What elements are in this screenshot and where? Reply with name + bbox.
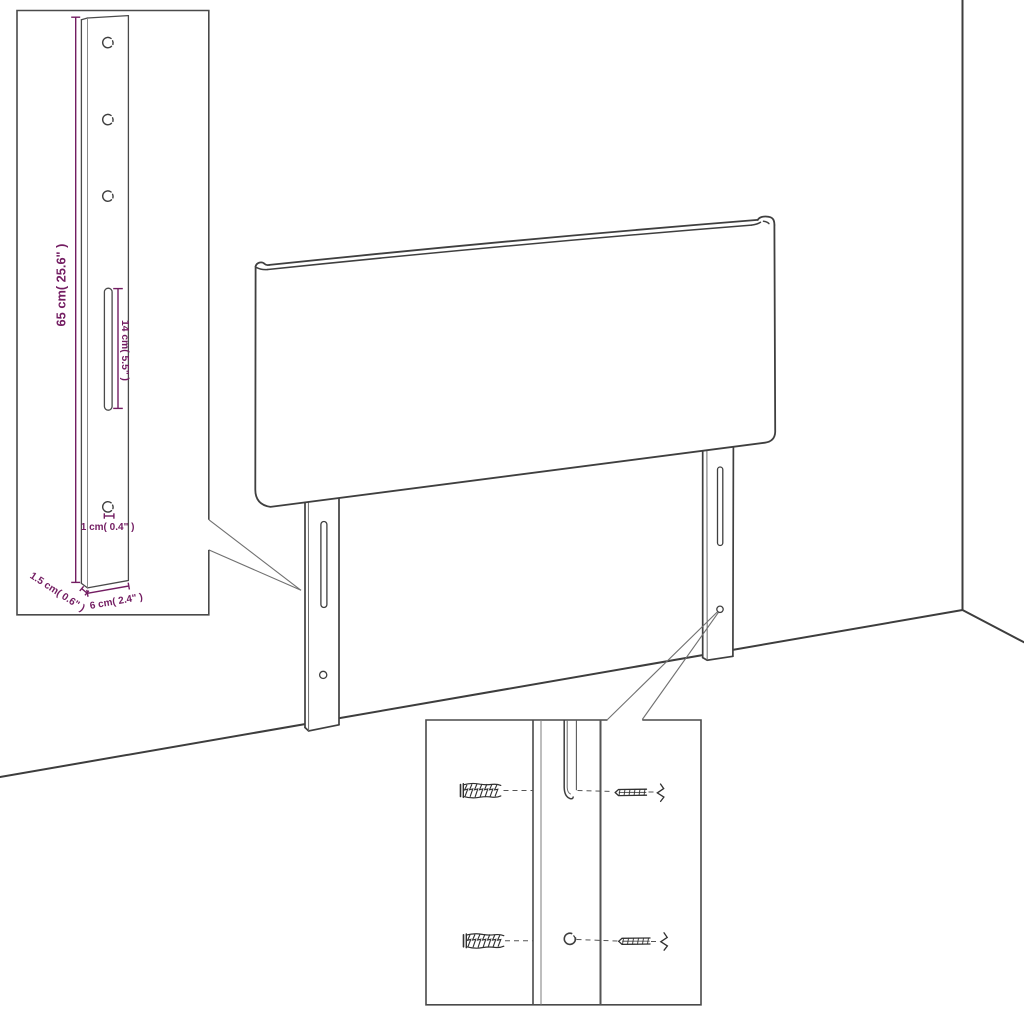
- svg-text:1 cm( 0.4" ): 1 cm( 0.4" ): [81, 522, 135, 533]
- svg-text:14 cm( 5.5" ): 14 cm( 5.5" ): [119, 320, 130, 381]
- svg-text:65 cm( 25.6" ): 65 cm( 25.6" ): [53, 244, 68, 327]
